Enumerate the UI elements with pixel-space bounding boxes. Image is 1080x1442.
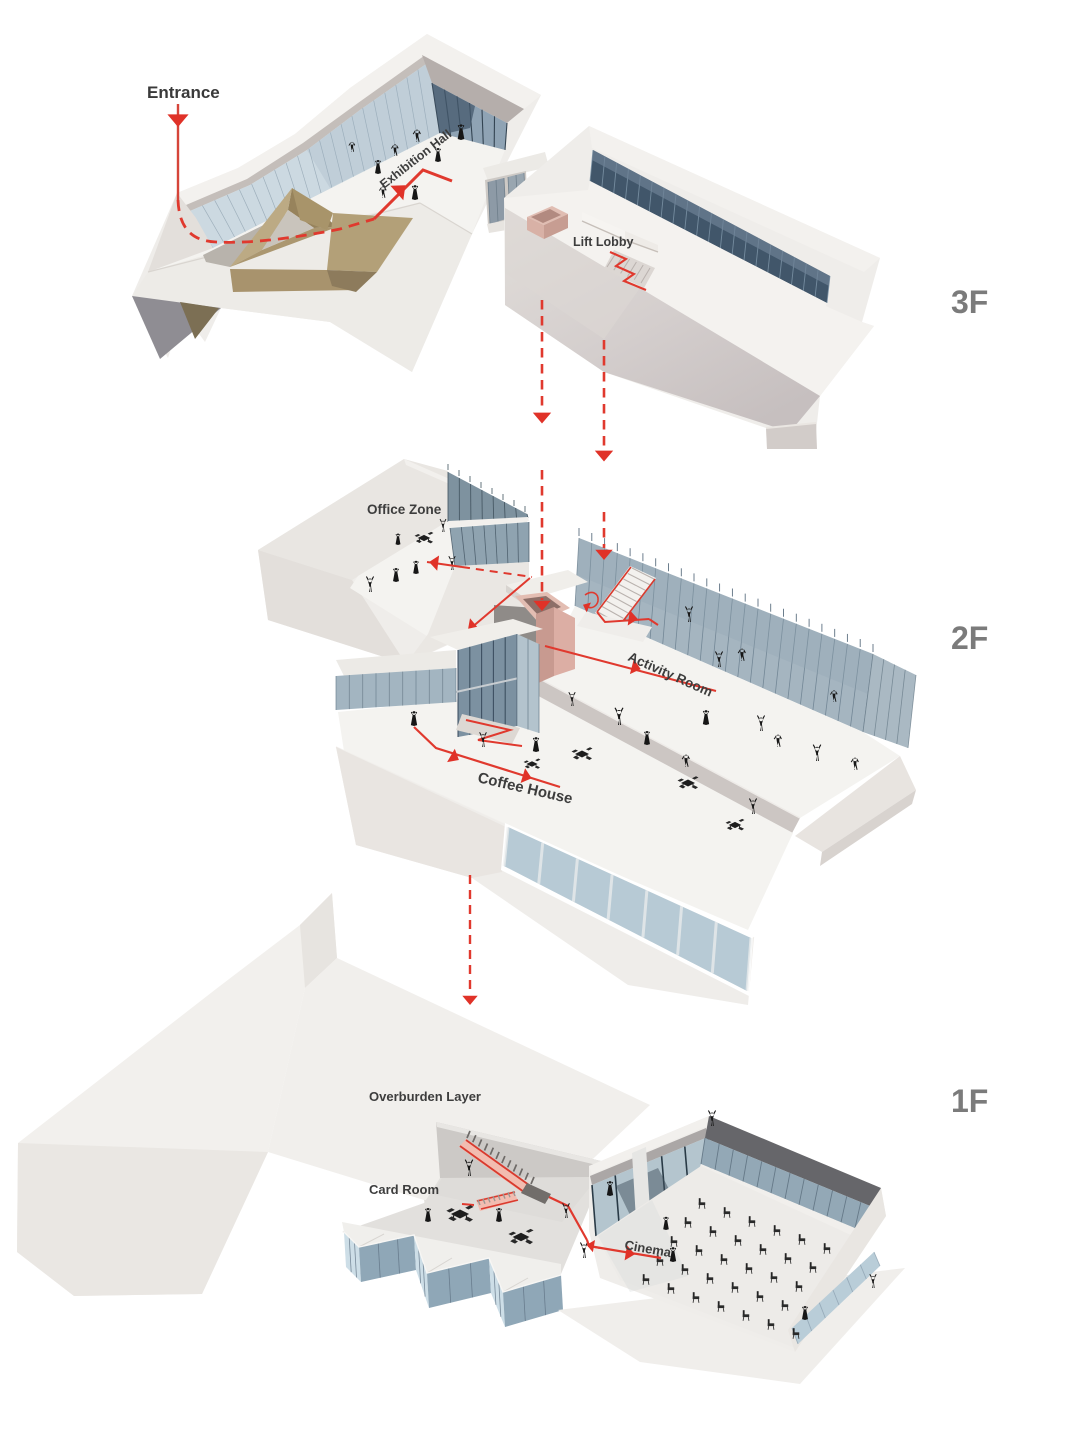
svg-text:3F: 3F [951, 284, 988, 320]
svg-text:Lift Lobby: Lift Lobby [573, 235, 633, 249]
svg-text:Card Room: Card Room [369, 1182, 439, 1197]
svg-text:2F: 2F [951, 620, 988, 656]
svg-text:1F: 1F [951, 1083, 988, 1119]
svg-text:Overburden Layer: Overburden Layer [369, 1089, 481, 1104]
svg-text:Office Zone: Office Zone [367, 502, 442, 517]
svg-text:Entrance: Entrance [147, 83, 220, 102]
